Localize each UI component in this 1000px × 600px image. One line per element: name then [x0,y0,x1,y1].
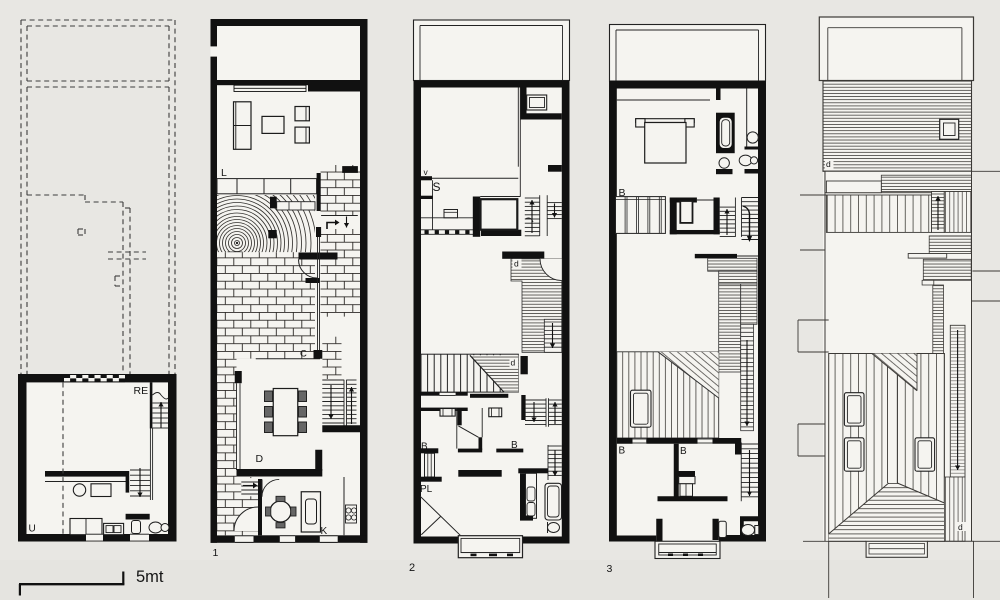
svg-text:PL: PL [420,484,433,495]
svg-text:d: d [826,159,831,169]
svg-text:L: L [221,167,227,179]
svg-text:B: B [619,446,626,457]
svg-text:B: B [680,446,687,457]
svg-text:1: 1 [213,547,219,559]
svg-text:d: d [514,259,519,269]
svg-text:K: K [321,526,328,537]
svg-text:D: D [256,453,264,465]
svg-text:RE: RE [134,385,149,397]
svg-text:U: U [29,524,36,535]
svg-text:d: d [511,358,516,368]
svg-text:S: S [433,180,441,194]
svg-text:5mt: 5mt [136,568,164,586]
svg-text:C: C [300,349,307,360]
svg-text:2: 2 [409,562,415,574]
svg-text:d: d [958,522,963,532]
svg-text:3: 3 [607,563,613,575]
